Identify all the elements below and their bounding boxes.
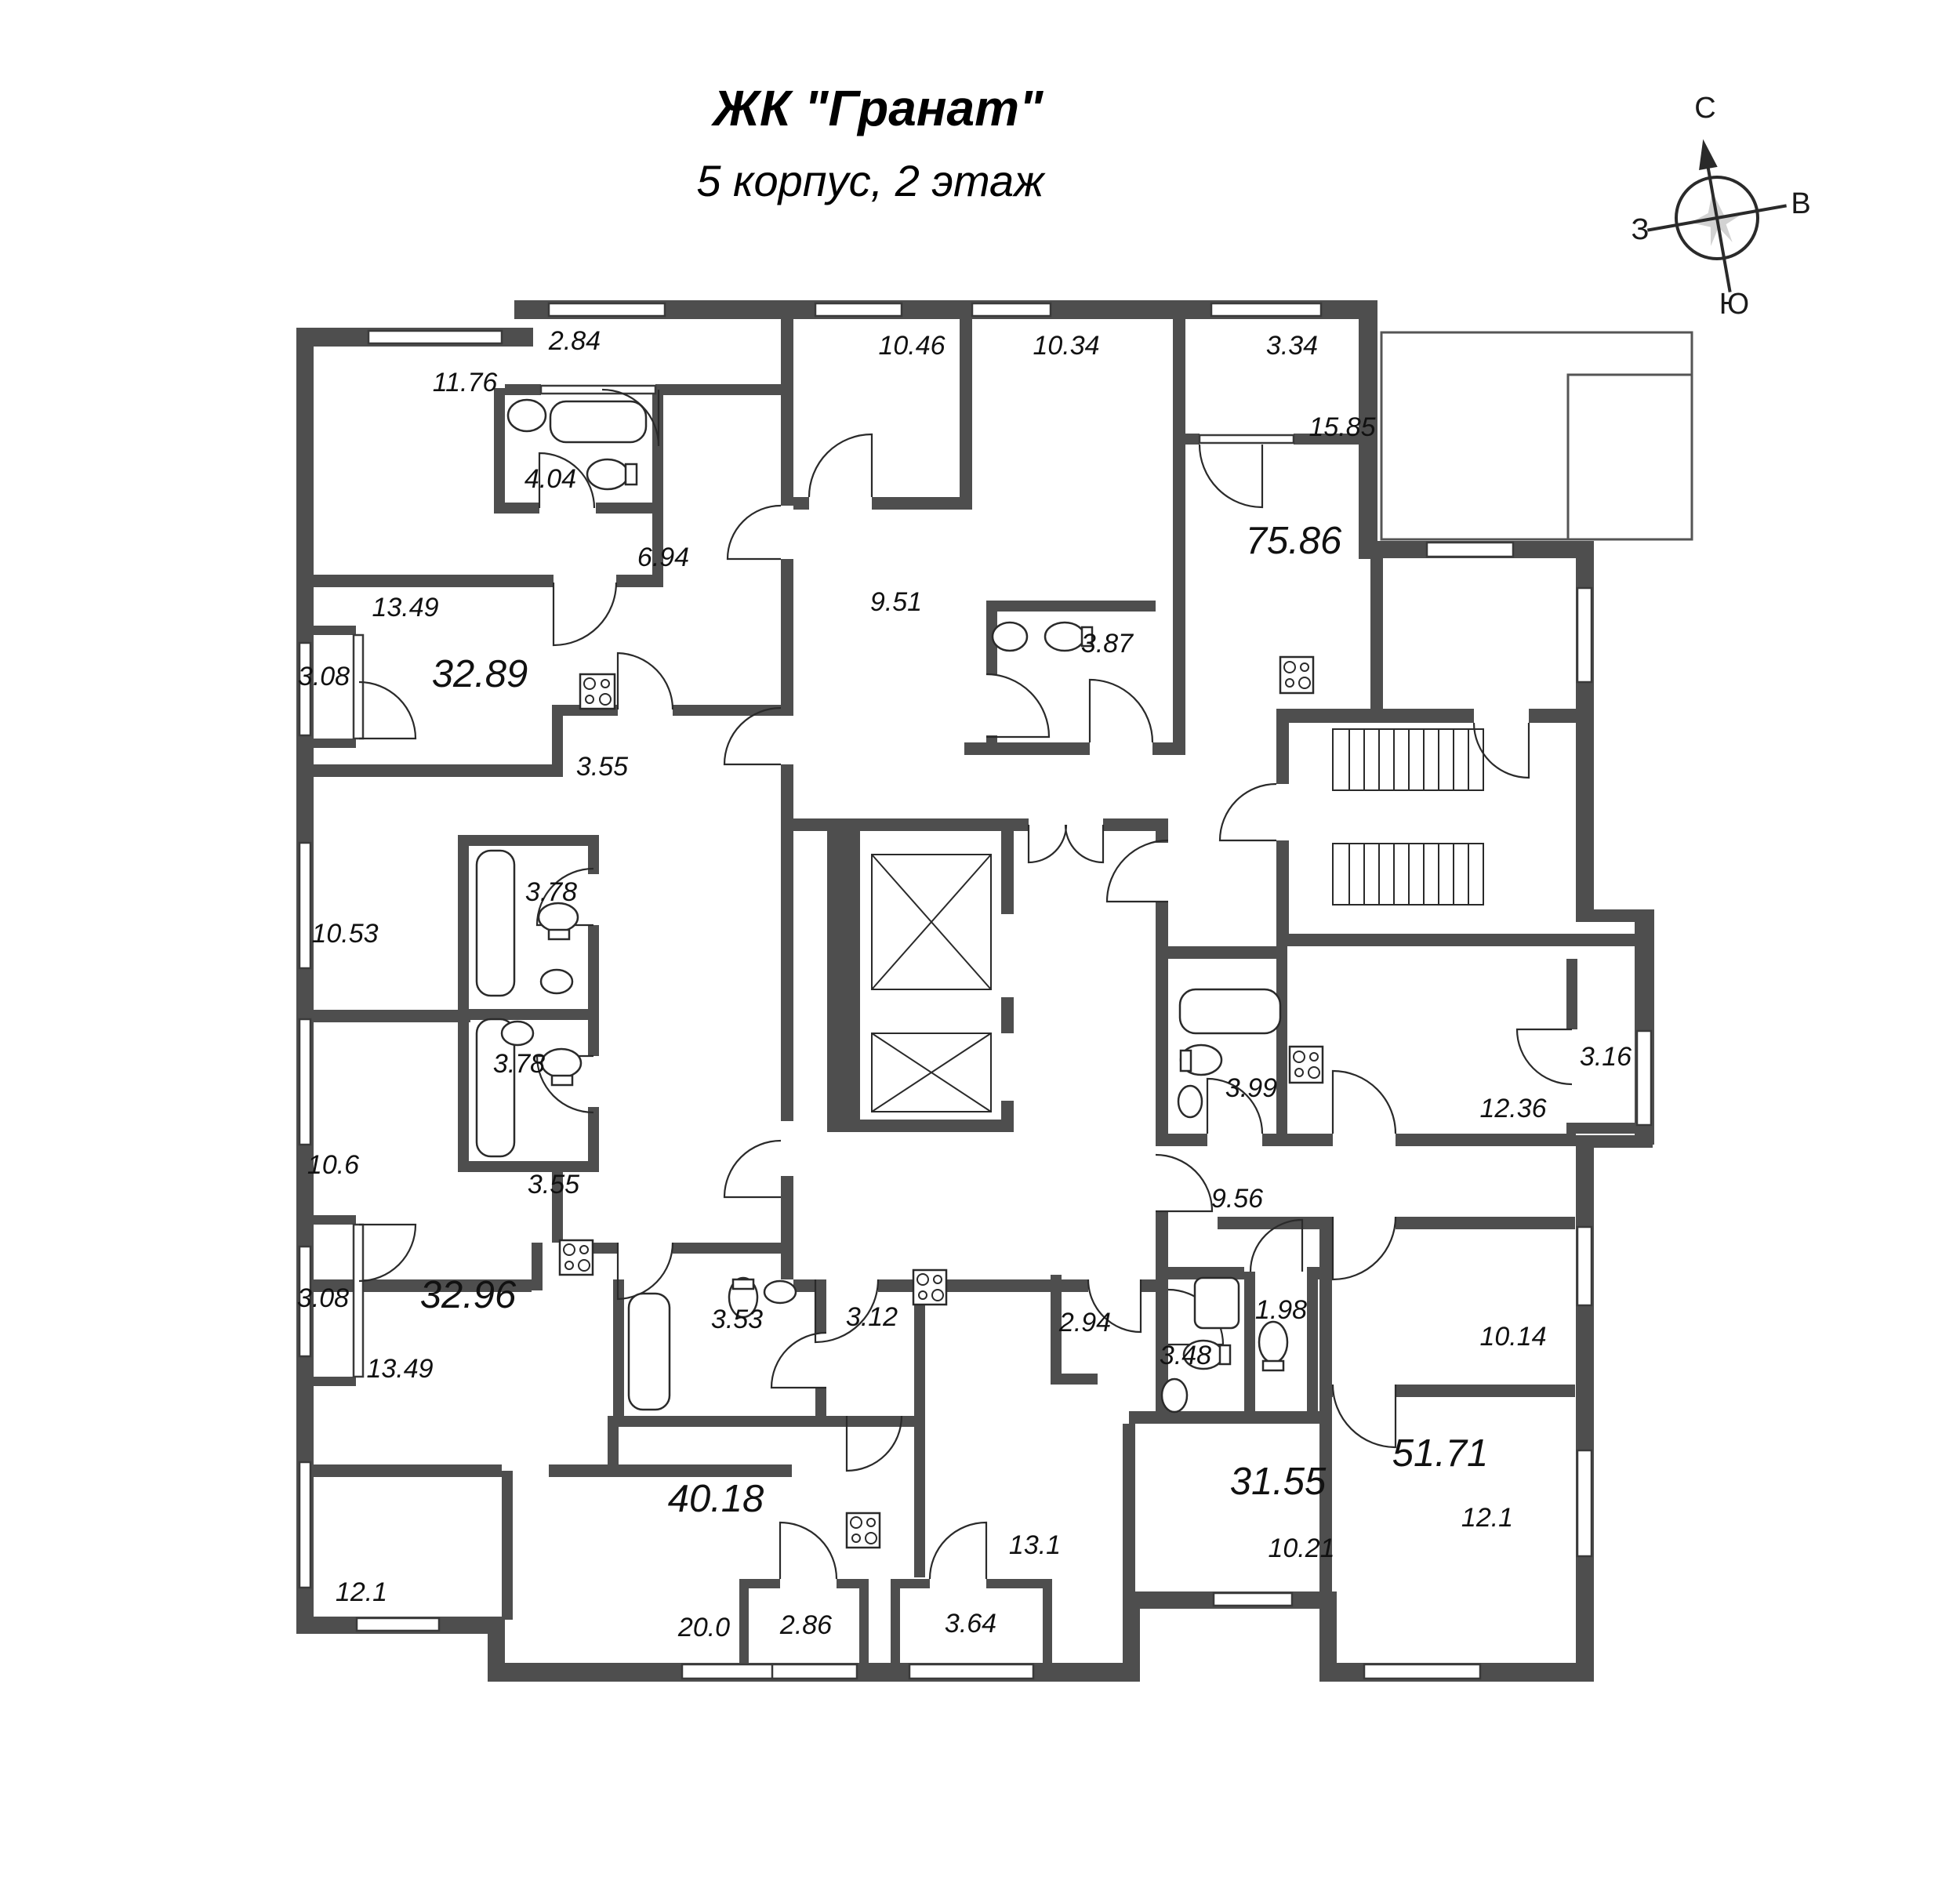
toilet-icon — [542, 1049, 581, 1085]
bathtub-icon — [550, 401, 646, 442]
area-label-balcony: 3.16 — [1580, 1042, 1632, 1072]
area-label-room: 13.49 — [372, 593, 438, 622]
toilet-icon — [1259, 1322, 1287, 1370]
apartment-total-label: 32.96 — [420, 1274, 517, 1316]
area-label-room: 10.46 — [878, 331, 945, 361]
apartment-total-label: 32.89 — [432, 653, 528, 695]
area-label-bathroom: 4.04 — [524, 464, 576, 494]
apartment-total-label: 75.86 — [1246, 520, 1342, 562]
compass-north-arrow-icon — [1693, 137, 1717, 170]
page-title: ЖК "Гранат" — [711, 80, 1044, 136]
apartment-total-label: 51.71 — [1392, 1432, 1489, 1475]
area-label-bathroom: 3.53 — [711, 1305, 763, 1334]
area-label-balcony: 3.64 — [945, 1609, 996, 1639]
elevator-icon — [872, 855, 991, 989]
title-block: ЖК "Гранат" 5 корпус, 2 этаж — [696, 80, 1046, 205]
floor-plan-page: ЖК "Гранат" 5 корпус, 2 этаж С В З Ю — [0, 0, 1960, 1880]
apartment-total-label: 40.18 — [668, 1478, 764, 1520]
area-label-bathroom: 3.78 — [525, 877, 577, 907]
area-label-hall: 6.94 — [637, 543, 689, 572]
sink-icon — [764, 1281, 796, 1303]
stove-icon — [560, 1240, 593, 1275]
page-subtitle: 5 корпус, 2 этаж — [696, 156, 1046, 205]
area-label-balcony: 2.86 — [779, 1610, 832, 1640]
area-label-room: 10.34 — [1033, 331, 1099, 361]
area-label-balcony: 3.08 — [297, 1283, 349, 1313]
cold-balcony-outline — [1381, 332, 1692, 539]
toilet-icon — [1181, 1045, 1221, 1075]
apartment-total-label: 31.55 — [1230, 1461, 1327, 1503]
area-label-room: 12.1 — [1461, 1503, 1513, 1533]
area-label-room: 15.85 — [1308, 412, 1375, 442]
area-label-kitchen: 12.36 — [1479, 1094, 1546, 1123]
compass-north-label: С — [1694, 92, 1715, 125]
sink-icon — [993, 622, 1027, 651]
sink-icon — [541, 970, 572, 993]
floor-plan-drawing: ЖК "Гранат" 5 корпус, 2 этаж С В З Ю — [0, 0, 1960, 1880]
area-label-balcony: 2.84 — [548, 326, 601, 356]
compass-west-label: З — [1632, 213, 1650, 246]
area-label-kitchen: 13.1 — [1009, 1530, 1061, 1560]
area-label-bathroom: 3.99 — [1225, 1073, 1277, 1103]
area-label-balcony: 3.08 — [298, 662, 350, 691]
area-label-hall: 9.56 — [1211, 1184, 1263, 1214]
elevator-icon — [872, 1033, 991, 1112]
area-label-wc: 1.98 — [1255, 1295, 1307, 1325]
area-label-room: 10.6 — [307, 1150, 359, 1180]
area-label-balcony: 3.34 — [1266, 331, 1318, 361]
elevator-shafts — [872, 855, 991, 1112]
compass-south-label: Ю — [1719, 288, 1749, 321]
compass-rose: С В З Ю — [1632, 92, 1811, 321]
bathtub-icon — [629, 1294, 670, 1410]
bathtub-icon — [1180, 989, 1280, 1033]
area-label-hall: 3.12 — [846, 1302, 898, 1332]
area-label-bathroom: 3.78 — [493, 1049, 545, 1079]
stove-icon — [847, 1513, 880, 1548]
sink-icon — [1178, 1086, 1202, 1117]
area-label-hall: 3.55 — [528, 1170, 579, 1199]
sink-icon — [502, 1022, 533, 1045]
stove-icon — [580, 674, 615, 709]
stove-icon — [1280, 657, 1313, 693]
fixtures — [477, 400, 1323, 1548]
sink-icon — [508, 400, 546, 431]
stove-icon — [1290, 1047, 1323, 1083]
shower-icon — [1195, 1278, 1239, 1328]
toilet-icon — [539, 903, 578, 939]
sink-icon — [1162, 1379, 1187, 1412]
area-label-bathroom: 3.87 — [1081, 629, 1134, 659]
area-label-room: 13.49 — [366, 1354, 433, 1384]
area-label-bathroom: 3.48 — [1160, 1341, 1211, 1370]
area-label-kitchen: 10.21 — [1268, 1533, 1334, 1563]
area-label-hall: 3.55 — [576, 752, 628, 782]
area-label-hall: 2.94 — [1058, 1308, 1111, 1337]
area-label-room: 12.1 — [336, 1577, 387, 1607]
stairs-icon — [1333, 729, 1483, 905]
area-label-room: 11.76 — [433, 368, 498, 397]
area-label-room: 10.53 — [311, 919, 378, 949]
bathtub-icon — [477, 851, 514, 996]
area-label-room: 10.14 — [1479, 1322, 1546, 1352]
compass-east-label: В — [1791, 187, 1810, 220]
area-label-room: 20.0 — [677, 1613, 730, 1642]
area-label-corridor: 9.51 — [870, 587, 922, 617]
stove-icon — [913, 1270, 946, 1305]
toilet-icon — [587, 459, 637, 489]
